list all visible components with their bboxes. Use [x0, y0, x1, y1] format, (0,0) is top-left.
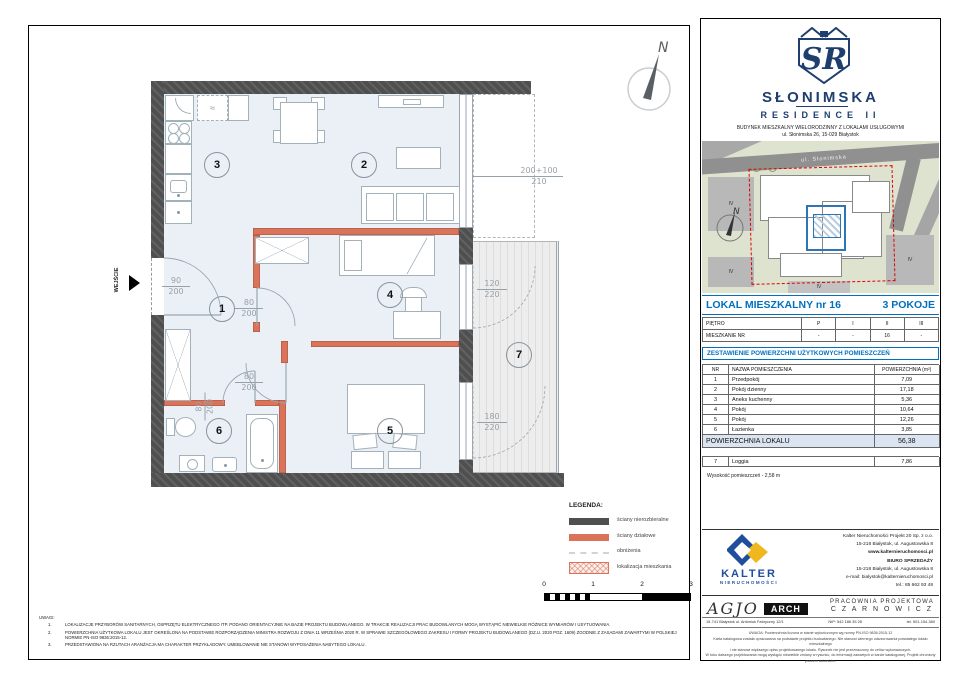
area-cell: 2	[703, 385, 729, 395]
scale-bar	[544, 593, 691, 601]
scale-tick: 0	[538, 581, 550, 588]
floor-table: PIĘTRO P I II III MIESZKANIE NR - - 16 -	[702, 317, 939, 342]
area-cell: 5,36	[875, 395, 940, 405]
developer-email: e-mail: bialystok@kalternieruchomosci.pl	[797, 574, 933, 582]
area-section-title: ZESTAWIENIE POWIERZCHNI UŻYTKOWYCH POMIE…	[702, 347, 939, 360]
legend-label: ściany nierozbieralne	[617, 517, 687, 523]
note-item: 1.LOKALIZACJE PRZYBORÓW SANITARNYCH, OSP…	[39, 622, 683, 627]
developer-line: 15-218 Białystok, ul. Augustowska 8	[797, 566, 933, 574]
legend-label: lokalizacja mieszkania	[617, 564, 687, 570]
studio-address: 15-741 Białystok ul. Antoniuk Fabryczny …	[706, 619, 784, 624]
area-cell: 6	[703, 425, 729, 435]
dim-hall-door: 80200	[235, 298, 263, 319]
divider	[702, 529, 939, 530]
dim-loggia-door: 120220	[477, 279, 507, 300]
room-number: 4	[387, 289, 393, 301]
brand-name: SŁONIMSKA	[701, 89, 940, 106]
note-item: 2.POWIERZCHNIA UŻYTKOWA LOKALU JEST OKRE…	[39, 630, 683, 641]
area-total-value: 56,38	[875, 435, 940, 448]
unit-rooms-count: 3 POKOJE	[882, 299, 935, 311]
bed-fold-line	[407, 238, 427, 274]
brand-logo-icon: SR	[763, 23, 881, 87]
room-label-1: 1	[209, 296, 235, 322]
area-cell: Łazienka	[729, 425, 875, 435]
entrance-label: WEJŚCIE	[114, 256, 120, 304]
brand-monogram: SR	[801, 42, 848, 77]
loggia-table: 7 Loggia 7,86	[702, 456, 939, 467]
site-plan: ul. Słonimska IV IV IV IV N	[702, 141, 939, 293]
area-cell: 10,64	[875, 405, 940, 415]
dim-entry-door: 90200	[162, 276, 190, 297]
site-unit-highlight	[806, 205, 846, 251]
floor-table-cell: -	[836, 330, 870, 342]
area-cell: 4	[703, 405, 729, 415]
room-number: 1	[219, 303, 225, 315]
developer-sub: NIERUCHOMOŚCI	[707, 580, 791, 585]
area-cell: 7	[703, 457, 729, 467]
scale-tick: 2	[636, 581, 648, 588]
area-table-header: NR	[703, 365, 729, 375]
room-label-6: 6	[206, 418, 232, 444]
dim-leader-line	[472, 176, 516, 177]
unit-title: LOKAL MIESZKALNY nr 16	[706, 299, 841, 311]
studio-tel: tel. 501-154-380	[907, 619, 935, 624]
brand-address-line: ul. Słonimska 26, 15-029 Białystok	[701, 132, 940, 138]
area-cell: 3,85	[875, 425, 940, 435]
legend-label: ściany działowe	[617, 533, 687, 539]
floor-table-cell: PIĘTRO	[703, 318, 802, 330]
entrance-arrow-icon	[129, 275, 140, 291]
note-item: 3.PRZEDSTAWIONA NA RZUTACH ARANŻACJA MA …	[39, 642, 683, 647]
dim-room5-door: 80200	[235, 372, 263, 393]
studio-logo: AGJO ARCH	[707, 599, 808, 618]
room-label-3: 3	[204, 152, 230, 178]
developer-logo-icon	[727, 533, 771, 567]
legend-swatch-partition	[569, 534, 609, 541]
studio-badge: ARCH	[764, 603, 808, 615]
floorplan-page: ≈	[28, 25, 690, 660]
legend-title: LEGENDA:	[569, 502, 603, 509]
legend-label: obniżenia	[617, 548, 687, 554]
brand-subname: RESIDENCE II	[701, 110, 940, 120]
scale-tick: 3	[685, 581, 697, 588]
floor-table-cell: -	[802, 330, 836, 342]
info-card-page: SR SŁONIMSKA RESIDENCE II BUDYNEK MIESZK…	[700, 18, 941, 661]
area-table-header: POWIERZCHNIA (m²)	[875, 365, 940, 375]
area-cell: 7,86	[875, 457, 940, 467]
notes-title: UWAGI:	[39, 615, 683, 620]
area-cell: Pokój dzienny	[729, 385, 875, 395]
area-cell: Loggia	[729, 457, 875, 467]
floor-table-cell: I	[836, 318, 870, 330]
room-label-2: 2	[351, 152, 377, 178]
divider	[702, 617, 939, 618]
fineprint-line: Karta katalogowa została opracowana na p…	[705, 637, 936, 648]
area-cell: 17,18	[875, 385, 940, 395]
floor-table-cell: 16	[871, 330, 905, 342]
plan-notes: UWAGI: 1.LOKALIZACJE PRZYBORÓW SANITARNY…	[39, 615, 683, 649]
room-number: 3	[214, 159, 220, 171]
room-label-7: 7	[506, 342, 532, 368]
area-cell: Przedpokój	[729, 375, 875, 385]
area-cell: 3	[703, 395, 729, 405]
area-table-header: NAZWA POMIESZCZENIA	[729, 365, 875, 375]
area-total-label: POWIERZCHNIA LOKALU	[703, 435, 875, 448]
legend-swatch-structural	[569, 518, 609, 525]
area-cell: Pokój	[729, 405, 875, 415]
developer-contact: Kalter Nieruchomości Projekt 20 Sp. z o.…	[797, 533, 933, 590]
area-cell: Pokój	[729, 415, 875, 425]
fineprint-line: W toku dalszego projektowania mogą wystą…	[705, 653, 936, 664]
developer-line: BIURO SPRZEDAŻY	[797, 558, 933, 566]
site-compass-icon: N	[710, 201, 750, 245]
floor-table-cell: MIESZKANIE NR	[703, 330, 802, 342]
brand-building-line: BUDYNEK MIESZKALNY WIELORODZINNY Z LOKAL…	[701, 125, 940, 131]
area-cell: 12,26	[875, 415, 940, 425]
developer-line: Kalter Nieruchomości Projekt 20 Sp. z o.…	[797, 533, 933, 541]
area-cell: 7,09	[875, 375, 940, 385]
area-cell: 1	[703, 375, 729, 385]
legend-swatch-unit-location	[569, 562, 609, 574]
unit-header-band: LOKAL MIESZKALNY nr 16 3 POKOJE	[702, 295, 939, 315]
studio-script: AGJO	[707, 599, 759, 618]
floor-table-cell: III	[905, 318, 939, 330]
dim-loggia-window: 180220	[477, 412, 507, 433]
studio-contact-row: 15-741 Białystok ul. Antoniuk Fabryczny …	[702, 619, 939, 624]
developer-name: KALTER	[707, 568, 791, 580]
floor-table-cell: -	[905, 330, 939, 342]
divider	[702, 595, 939, 596]
street-label: ul. Słonimska	[801, 154, 847, 163]
compass-n-label: N	[658, 40, 669, 56]
fineprint: UWAGA: Powierzchnia liczona w stanie wyk…	[705, 631, 936, 665]
site-road-right	[889, 156, 920, 231]
studio-name: PRACOWNIA PROJEKTOWA C Z A R N O W I C Z	[829, 599, 935, 613]
divider	[702, 627, 939, 628]
site-compass-n: N	[733, 207, 740, 217]
brand-underline	[796, 106, 848, 107]
dim-corner-window: 200+100210	[515, 166, 563, 187]
room-label-5: 5	[377, 418, 403, 444]
site-building: IV	[708, 257, 754, 287]
room-number: 5	[387, 425, 393, 437]
area-cell: 5	[703, 415, 729, 425]
room-number: 6	[216, 425, 222, 437]
legend-swatch-lowered-ceiling	[569, 552, 609, 554]
area-table: NR NAZWA POMIESZCZENIA POWIERZCHNIA (m²)…	[702, 364, 939, 448]
studio-nip: NIP: 542 186 35 28	[828, 619, 862, 624]
studio-line2: C Z A R N O W I C Z	[829, 606, 935, 613]
dim-bath-door: 80200	[195, 393, 216, 421]
floor-table-cell: II	[871, 318, 905, 330]
developer-website: www.kalternieruchomosci.pl	[797, 549, 933, 557]
room-number: 2	[361, 159, 367, 171]
room-label-4: 4	[377, 282, 403, 308]
studio-line1: PRACOWNIA PROJEKTOWA	[829, 599, 935, 605]
developer-line: 15-218 Białystok, ul. Augustowska 8	[797, 541, 933, 549]
developer-phone: tel.: 85 662 93 48	[797, 582, 933, 590]
floor-table-cell: P	[802, 318, 836, 330]
room-number: 7	[516, 349, 522, 361]
scale-tick: 1	[587, 581, 599, 588]
compass-icon: N	[614, 34, 684, 114]
height-note: Wysokość pomieszczeń - 2,58 m	[707, 473, 780, 479]
area-cell: Aneks kuchenny	[729, 395, 875, 405]
